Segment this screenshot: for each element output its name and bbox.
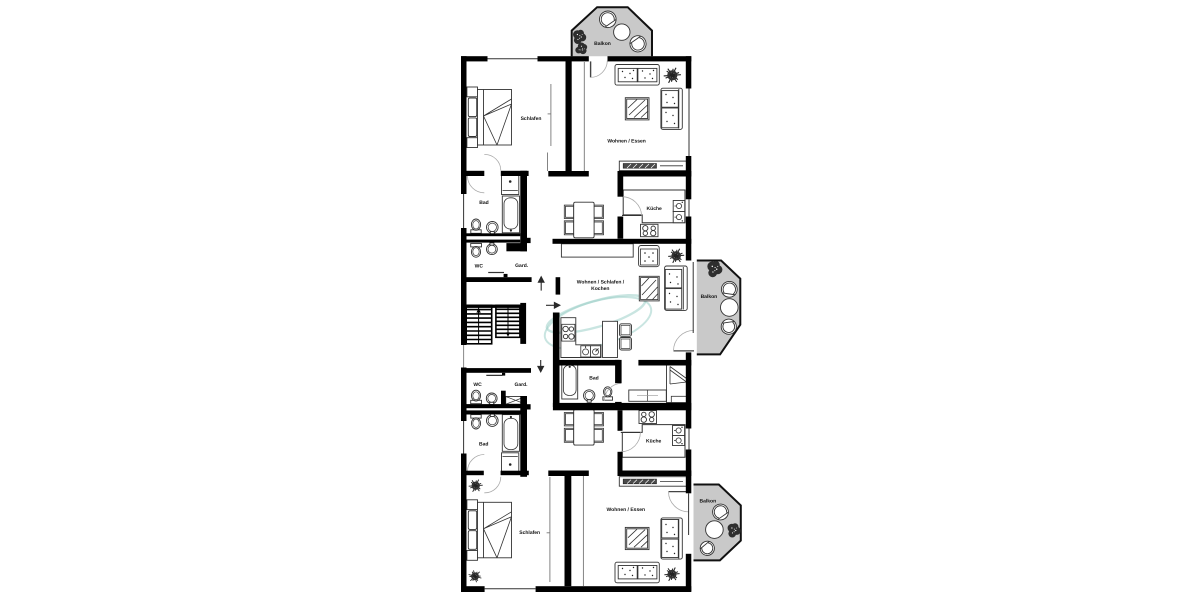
- svg-text:Kochen: Kochen: [591, 286, 609, 292]
- svg-text:Küche: Küche: [646, 438, 662, 444]
- svg-text:Balkon: Balkon: [594, 41, 611, 47]
- svg-text:Gard.: Gard.: [514, 382, 528, 388]
- svg-text:Schlafen: Schlafen: [519, 530, 540, 536]
- svg-text:WC: WC: [473, 382, 482, 388]
- svg-text:Bad: Bad: [479, 442, 488, 448]
- svg-text:Bad: Bad: [589, 375, 598, 381]
- svg-text:Wohnen / Essen: Wohnen / Essen: [607, 139, 646, 145]
- svg-text:Küche: Küche: [647, 206, 663, 212]
- svg-text:Wohnen / Essen: Wohnen / Essen: [607, 507, 646, 513]
- svg-text:Gard.: Gard.: [515, 263, 529, 269]
- svg-text:Balkon: Balkon: [701, 294, 718, 300]
- svg-text:WC: WC: [475, 264, 484, 270]
- svg-text:Wohnen / Schlafen /: Wohnen / Schlafen /: [577, 280, 625, 286]
- svg-text:Schlafen: Schlafen: [521, 116, 542, 122]
- svg-text:Balkon: Balkon: [699, 498, 716, 504]
- svg-text:Bad: Bad: [479, 200, 488, 206]
